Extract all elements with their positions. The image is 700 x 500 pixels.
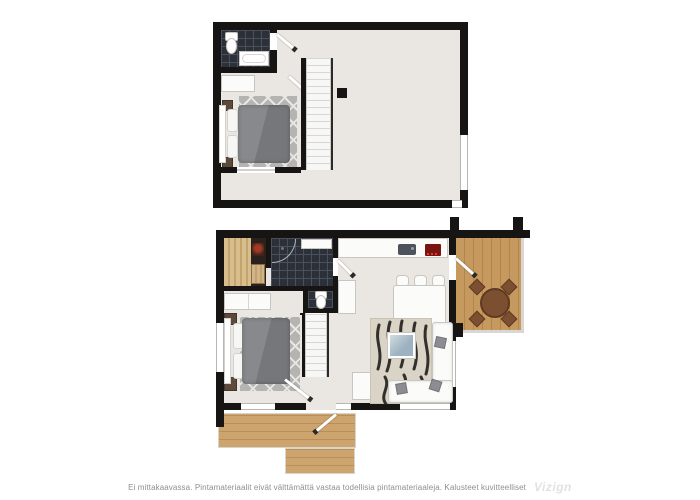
bed-duvet [238,105,290,163]
upper-bedroom-bottom-wall [221,167,237,173]
terrace-deck-step [285,448,355,474]
bed-pillow [227,135,238,158]
disclaimer-text: Ei mittakaavassa. Pintamateriaalit eivät… [128,483,526,492]
floor-plan-image: Ei mittakaavassa. Pintamateriaalit eivät… [0,0,700,500]
refrigerator-icon [338,280,356,314]
entry-door-opening [306,403,336,410]
watermark-logo: Vizign [534,480,572,494]
upper-stair-railing [331,58,333,170]
bed-pillow [227,109,238,132]
bathroom-vanity-icon [301,239,332,249]
kitchen-sink-icon [398,244,416,255]
upper-bedroom-opening [237,167,275,173]
upper-right-window [460,135,468,190]
upper-floor-plan [213,22,468,208]
upper-toilet-icon [223,32,238,52]
shower-drain-icon [281,247,284,250]
lower-floor-plan [213,217,533,479]
balcony-railing [521,238,524,333]
caption-row: Ei mittakaavassa. Pintamateriaalit eivät… [0,480,700,494]
hall-bottom-window [336,403,351,410]
upper-bathroom-wall [270,50,277,67]
bedroom-bottom-window [241,403,275,410]
sauna-benches [224,238,251,286]
log-corner-post [450,217,459,238]
upper-bathtub-icon [239,51,269,66]
cabinet-divider [248,294,249,309]
bed-headboard [219,105,226,163]
upper-column-icon [337,88,347,98]
upper-double-bed-icon [219,105,290,163]
bed-headboard [224,318,231,384]
upper-dresser-icon [221,75,255,92]
upper-bottom-window [452,200,462,208]
wc-wall [303,291,308,308]
upper-staircase-icon [306,58,331,170]
sofa-pillow-icon [434,336,447,349]
sauna-step-icon [251,264,265,284]
bedroom-left-window [216,323,224,372]
sauna-heater-icon [252,243,264,256]
coffee-table-icon [388,333,415,358]
balcony-corner-post [452,323,463,337]
terrace-deck [218,413,356,448]
outdoor-table-icon [480,288,510,318]
bed-duvet [242,318,290,384]
lower-staircase-icon [305,313,327,377]
balcony-railing [456,330,524,333]
lower-double-bed-icon [224,318,290,384]
kitchen-stove-icon [425,244,441,256]
sofa-pillow-icon [395,382,408,395]
laundry-cabinets-icon [224,293,271,310]
upper-bathroom-bottom-wall [221,67,277,73]
living-room-bottom-window [400,403,450,410]
terrace-wall-post [216,403,224,427]
wc-toilet-icon [313,291,327,307]
lower-stair-railing [327,313,329,377]
upper-bedroom-bottom-wall [275,167,301,173]
